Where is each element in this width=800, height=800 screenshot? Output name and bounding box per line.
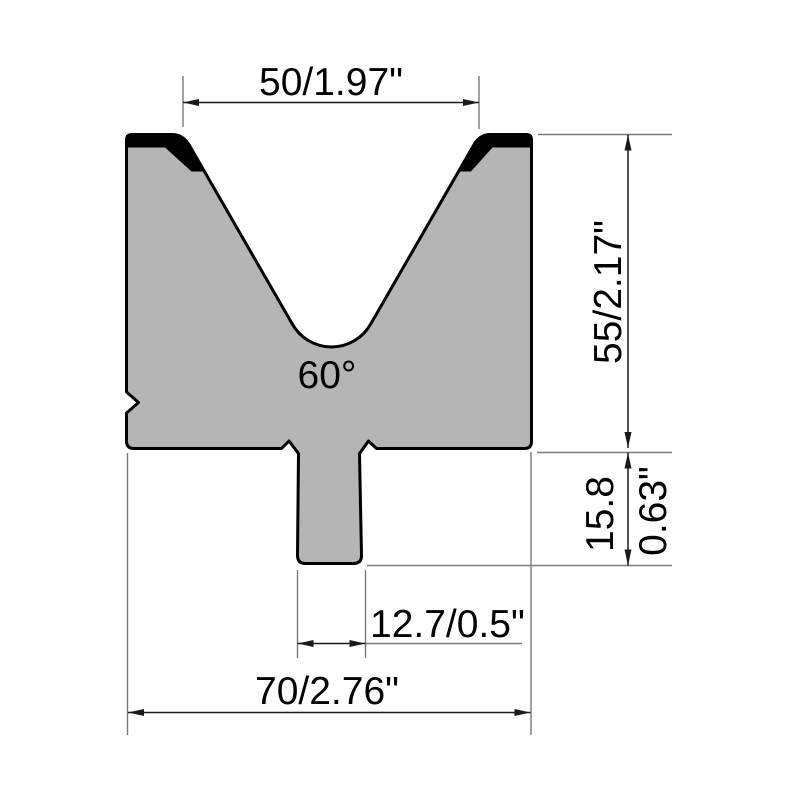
label-body-height: 55/2.17"	[587, 220, 630, 364]
technical-drawing-page: 60° 50/1.97" 55/2.17" 15.8 0.63"	[0, 0, 800, 800]
label-overall-width: 70/2.76"	[255, 670, 399, 713]
label-shank-height-mm: 15.8	[579, 476, 622, 552]
label-shank-height-in: 0.63"	[632, 466, 675, 556]
technical-drawing-canvas: 60° 50/1.97" 55/2.17" 15.8 0.63"	[0, 0, 800, 800]
label-v-opening-width: 50/1.97"	[259, 61, 403, 104]
label-shank-width: 12.7/0.5"	[370, 603, 525, 646]
label-die-angle: 60°	[298, 354, 357, 397]
